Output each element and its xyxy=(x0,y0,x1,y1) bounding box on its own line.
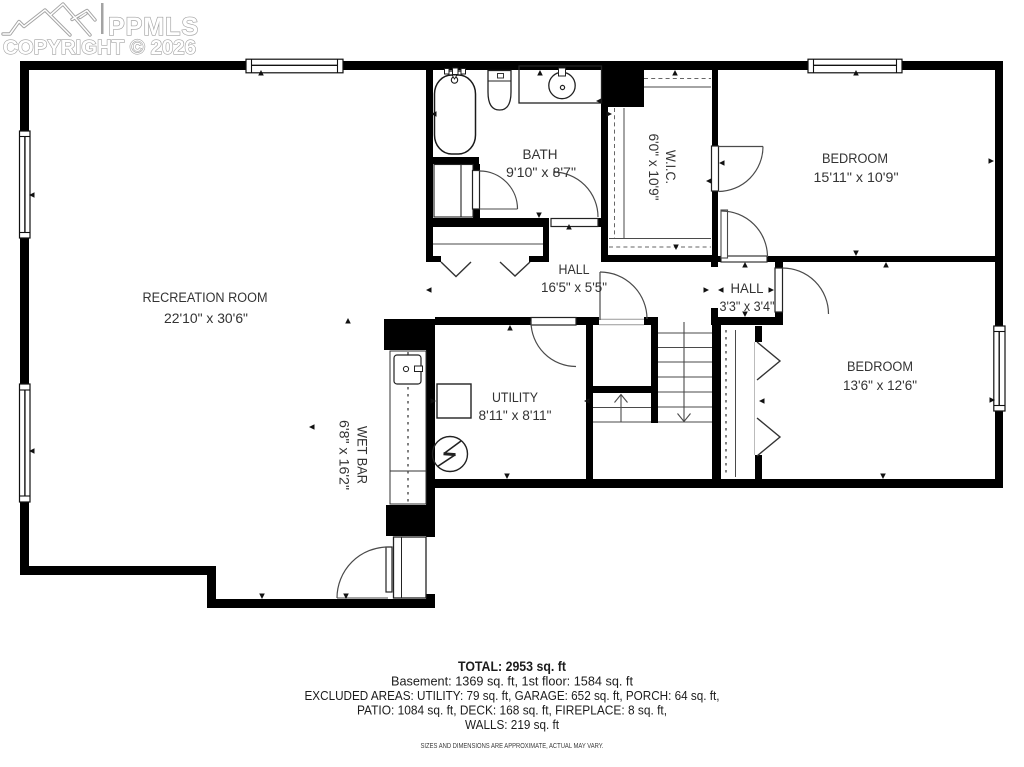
svg-text:BEDROOM: BEDROOM xyxy=(847,359,913,374)
svg-text:W.I.C.: W.I.C. xyxy=(663,150,678,184)
svg-text:16'5" x 5'5": 16'5" x 5'5" xyxy=(541,280,607,295)
svg-text:WALLS: 219 sq. ft: WALLS: 219 sq. ft xyxy=(465,717,559,732)
svg-text:13'6" x 12'6": 13'6" x 12'6" xyxy=(843,378,917,393)
svg-text:EXCLUDED AREAS: UTILITY: 79 sq: EXCLUDED AREAS: UTILITY: 79 sq. ft, GARA… xyxy=(305,688,720,703)
svg-text:SIZES AND DIMENSIONS ARE APPRO: SIZES AND DIMENSIONS ARE APPROXIMATE, AC… xyxy=(421,741,604,750)
svg-text:HALL: HALL xyxy=(559,262,590,277)
svg-text:8'11" x 8'11": 8'11" x 8'11" xyxy=(479,408,552,423)
svg-text:Basement: 1369 sq. ft, 1st flo: Basement: 1369 sq. ft, 1st floor: 1584 s… xyxy=(391,674,633,689)
svg-text:3'3" x 3'4": 3'3" x 3'4" xyxy=(720,299,775,314)
svg-text:WET BAR: WET BAR xyxy=(355,426,370,484)
svg-text:15'11" x 10'9": 15'11" x 10'9" xyxy=(814,170,899,185)
svg-text:UTILITY: UTILITY xyxy=(492,390,538,405)
svg-text:COPYRIGHT © 2026: COPYRIGHT © 2026 xyxy=(3,36,196,59)
svg-text:22'10" x 30'6": 22'10" x 30'6" xyxy=(164,311,248,326)
svg-text:BATH: BATH xyxy=(523,147,558,162)
svg-text:RECREATION ROOM: RECREATION ROOM xyxy=(143,290,268,305)
svg-text:6'0" x 10'9": 6'0" x 10'9" xyxy=(646,134,661,201)
svg-text:9'10" x 8'7": 9'10" x 8'7" xyxy=(506,165,576,180)
svg-text:HALL: HALL xyxy=(731,281,764,296)
svg-text:PATIO: 1084 sq. ft, DECK: 168: PATIO: 1084 sq. ft, DECK: 168 sq. ft, FI… xyxy=(357,703,667,718)
svg-text:TOTAL: 2953 sq. ft: TOTAL: 2953 sq. ft xyxy=(458,659,566,674)
svg-text:6'8" x 16'2": 6'8" x 16'2" xyxy=(337,420,352,490)
svg-text:BEDROOM: BEDROOM xyxy=(822,151,888,166)
